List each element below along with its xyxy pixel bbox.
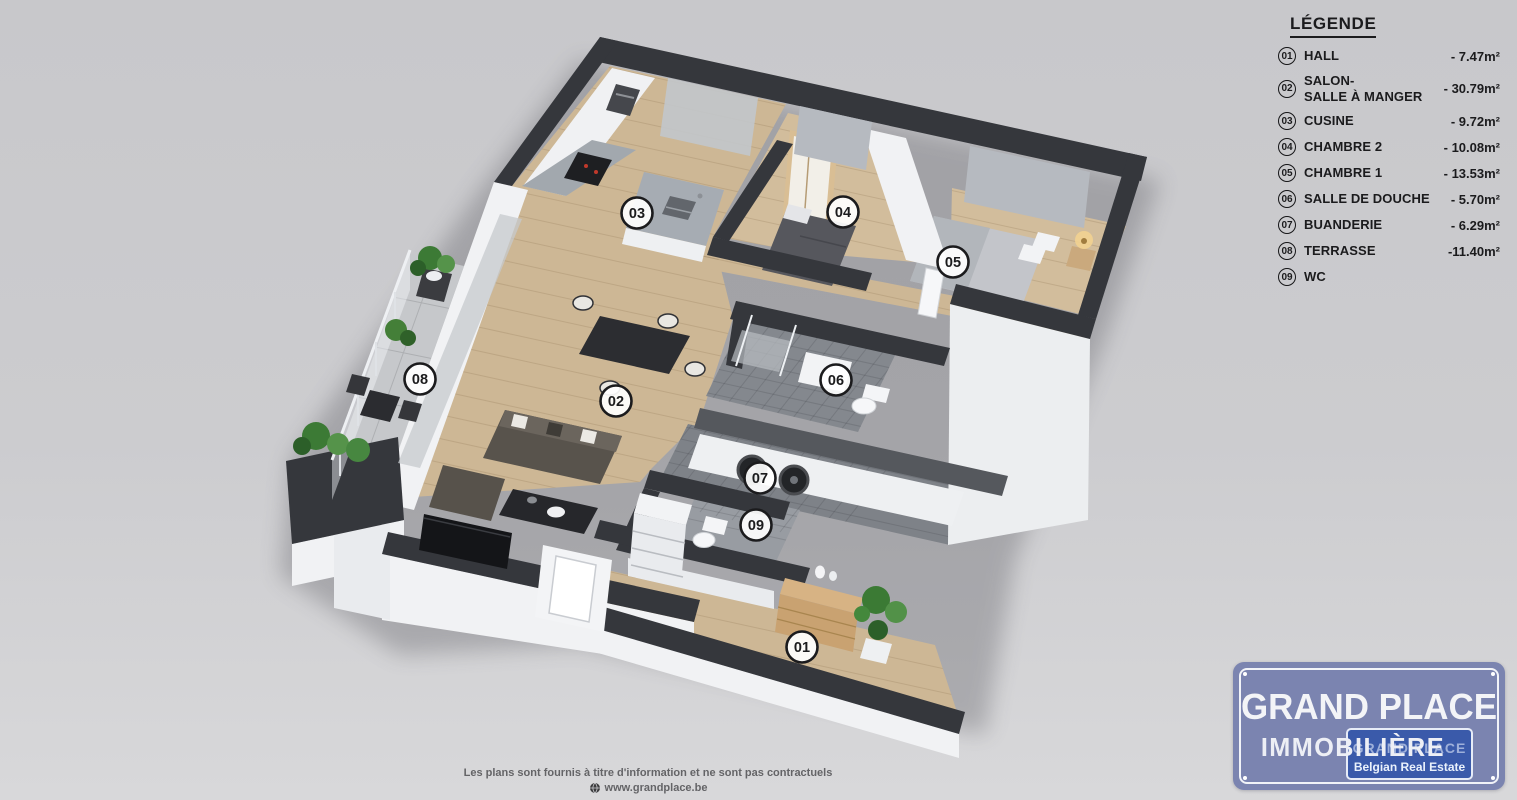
legend-num: 02 xyxy=(1278,80,1296,98)
vase xyxy=(815,566,825,579)
toilet-bowl xyxy=(852,398,876,414)
room-label-badge-06: 06 xyxy=(821,365,852,396)
legend-num: 07 xyxy=(1278,216,1296,234)
legend-room-name: BUANDERIE xyxy=(1304,217,1445,233)
legend-row-salon: 02 SALON- SALLE À MANGER - 30.79m² xyxy=(1278,73,1500,104)
footer: Les plans sont fournis à titre d'informa… xyxy=(368,766,928,799)
dining-chair xyxy=(573,296,593,310)
legend-room-name: WC xyxy=(1304,269,1494,285)
legend-num: 05 xyxy=(1278,164,1296,182)
legend-num: 03 xyxy=(1278,112,1296,130)
entry-door-leaf xyxy=(549,556,596,622)
svg-text:07: 07 xyxy=(752,471,768,487)
legend-room-area: - 10.08m² xyxy=(1438,140,1500,155)
dining-chair xyxy=(685,362,705,376)
legend-room-area: - 5.70m² xyxy=(1445,192,1500,207)
legend-row-hall: 01 HALL - 7.47m² xyxy=(1278,47,1500,65)
legend-num: 08 xyxy=(1278,242,1296,260)
room-label-badge-07: 07 xyxy=(745,463,776,494)
legend-room-area: - 7.47m² xyxy=(1445,49,1500,64)
legend-room-area: - 9.72m² xyxy=(1445,114,1500,129)
legend-room-area: - 30.79m² xyxy=(1438,81,1500,96)
legend-room-area: -11.40m² xyxy=(1442,244,1500,259)
legend-room-name: CHAMBRE 2 xyxy=(1304,139,1438,155)
legend-row-cusine: 03 CUSINE - 9.72m² xyxy=(1278,112,1500,130)
legend-room-area: - 6.29m² xyxy=(1445,218,1500,233)
legend-num: 06 xyxy=(1278,190,1296,208)
svg-text:05: 05 xyxy=(945,255,961,271)
svg-text:06: 06 xyxy=(828,373,844,389)
legend-room-name: HALL xyxy=(1304,48,1445,64)
legend-row-chambre2: 04 CHAMBRE 2 - 10.08m² xyxy=(1278,138,1500,156)
bedroom1-south-face xyxy=(948,304,1090,545)
legend-row-chambre1: 05 CHAMBRE 1 - 13.53m² xyxy=(1278,164,1500,182)
room-label-badge-04: 04 xyxy=(828,197,859,228)
legend: LÉGENDE 01 HALL - 7.47m² 02 SALON- SALLE… xyxy=(1278,14,1500,294)
svg-text:03: 03 xyxy=(629,206,645,222)
dining-chair xyxy=(658,314,678,328)
grandplace-logo: GRAND PLACE GRAND PLACE IMMOBILIÈRE Belg… xyxy=(1233,662,1505,790)
website-url: www.grandplace.be xyxy=(605,781,708,796)
svg-text:08: 08 xyxy=(412,372,428,388)
svg-text:02: 02 xyxy=(608,394,624,410)
legend-num: 04 xyxy=(1278,138,1296,156)
svg-text:04: 04 xyxy=(835,205,851,221)
legend-num: 09 xyxy=(1278,268,1296,286)
wc-bowl xyxy=(693,533,715,548)
plant-pot xyxy=(426,271,442,281)
disclaimer-text: Les plans sont fournis à titre d'informa… xyxy=(368,766,928,781)
svg-text:09: 09 xyxy=(748,518,764,534)
legend-room-name: CUSINE xyxy=(1304,113,1445,129)
legend-num: 01 xyxy=(1278,47,1296,65)
faucet xyxy=(698,194,703,199)
room-label-badge-05: 05 xyxy=(938,247,969,278)
room-label-badge-08: 08 xyxy=(405,364,436,395)
room-label-badge-01: 01 xyxy=(787,632,818,663)
logo-badge-tagline: Belgian Real Estate xyxy=(1346,760,1473,774)
vase xyxy=(829,571,837,581)
room-label-badge-09: 09 xyxy=(741,510,772,541)
legend-row-buanderie: 07 BUANDERIE - 6.29m² xyxy=(1278,216,1500,234)
globe-icon xyxy=(589,782,601,794)
legend-row-wc: 09 WC xyxy=(1278,268,1500,286)
room-label-badge-02: 02 xyxy=(601,386,632,417)
logo-corner-screws xyxy=(1243,672,1247,676)
logo-brand-line2: IMMOBILIÈRE xyxy=(1261,732,1445,763)
washing-machine xyxy=(780,466,808,494)
logo-brand-line1: GRAND PLACE xyxy=(1237,686,1501,728)
legend-row-terrasse: 08 TERRASSE -11.40m² xyxy=(1278,242,1500,260)
svg-text:01: 01 xyxy=(794,640,810,656)
floor-plan-page: 01 02 03 04 05 06 07 08 09 LÉGENDE 01 HA… xyxy=(0,0,1517,800)
legend-room-name: SALLE DE DOUCHE xyxy=(1304,191,1445,207)
legend-room-name: SALON- SALLE À MANGER xyxy=(1304,73,1438,104)
room-label-badge-03: 03 xyxy=(622,198,653,229)
legend-room-area: - 13.53m² xyxy=(1438,166,1500,181)
legend-room-name: TERRASSE xyxy=(1304,243,1442,259)
legend-title: LÉGENDE xyxy=(1290,14,1376,38)
legend-row-douche: 06 SALLE DE DOUCHE - 5.70m² xyxy=(1278,190,1500,208)
legend-room-name: CHAMBRE 1 xyxy=(1304,165,1438,181)
